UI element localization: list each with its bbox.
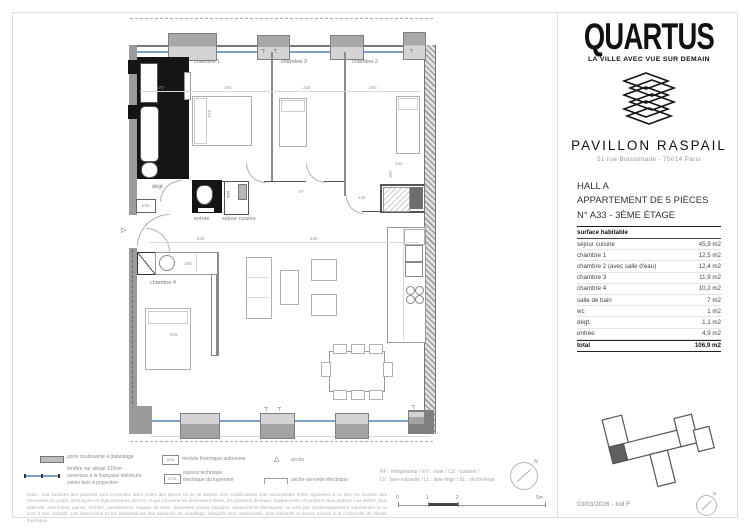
hall-label: HALL A [577, 180, 708, 194]
legend-mta-label: module thermique autonome [182, 456, 246, 462]
chair [383, 362, 393, 377]
scale-label-2: 2 [456, 495, 459, 501]
bathroom-door-slot [184, 72, 191, 100]
row-label: chambre 3 [577, 274, 606, 281]
washbasin [140, 63, 158, 103]
row-label: chambre 2 (avec salle d'eau) [577, 263, 656, 270]
dimension-label: 200 [369, 85, 377, 90]
hall-wall [324, 181, 344, 182]
coffee-table [280, 270, 299, 305]
dimension-label: 225 [170, 332, 178, 337]
legend-porte-label: porte coulissante à galandage [67, 454, 134, 460]
table-row: chambre 112,5 m2 [577, 250, 721, 261]
chair [321, 362, 331, 377]
window-legend-tick [41, 474, 43, 478]
hob-burner [406, 295, 415, 304]
radiator-icon: ⊤ [411, 406, 415, 411]
scale-tick [458, 502, 459, 507]
room-label-chambre4: chambre 4 [150, 280, 176, 286]
appliance-key-l2: LV : lave-vaisselle / LL : lave-linge / … [380, 477, 495, 483]
salle-eau-wall [380, 184, 424, 186]
hob-burner [406, 286, 415, 295]
table-row: dégt.1,1 m2 [577, 317, 721, 328]
table-row: chambre 410,2 m2 [577, 284, 721, 295]
row-label: séjour cuisine [577, 241, 615, 248]
mta-legend-abbr: MTA [167, 458, 174, 462]
scale-tick [545, 502, 546, 507]
wc-door-slot [198, 208, 214, 212]
legend-fenetre-l1: fenêtre sur allège 120cm [67, 466, 122, 472]
etel-legend-abbr: ETEL [168, 477, 176, 481]
row-label: dégt. [577, 319, 591, 326]
chair [333, 344, 347, 354]
shower [383, 187, 410, 212]
wall-left-lower [129, 248, 137, 408]
duct-box [137, 252, 156, 275]
window-box [335, 413, 369, 439]
hall-wall [264, 181, 306, 182]
dimension-chain [140, 91, 420, 92]
chambre2-wall [362, 211, 380, 212]
sink [405, 245, 423, 262]
window-legend-tick [58, 474, 60, 478]
dimension-label: 415 [207, 110, 212, 118]
wall-chambre1-3 [271, 52, 273, 182]
row-label: chambre 4 [577, 285, 606, 292]
surface-table-header: surface habitable [577, 226, 721, 239]
etel-box-label: ETEL [142, 204, 150, 208]
sliding-door-pocket [211, 274, 217, 356]
etel-legend-icon: ETEL [164, 474, 181, 484]
project-address: 51 rue Boissonade - 75014 Paris [560, 156, 738, 163]
sofa-cushion-line [247, 277, 269, 278]
chair [369, 344, 383, 354]
window-box [403, 32, 426, 60]
chair [369, 390, 383, 400]
toilet [141, 162, 158, 178]
dimension-label: 240 [197, 236, 205, 241]
row-label: chambre 1 [577, 252, 606, 259]
room-label-sejour: séjour cuisine [222, 216, 256, 222]
hall-wall [222, 181, 246, 182]
room-label-chambre1: chambre 1 [194, 59, 220, 65]
boundary-line-top [130, 18, 433, 19]
window-box [180, 413, 220, 439]
boundary-line-bottom [130, 441, 433, 442]
date-stamp: 03/03/2026 - Ind F [577, 501, 630, 508]
radiator-icon: ⊤ [261, 50, 265, 55]
wall-chambre3-2 [344, 52, 346, 196]
row-value: 1,1 m2 [702, 319, 721, 326]
toilet [196, 185, 213, 205]
window-box [330, 35, 364, 60]
table-row: salle de bain7 m2 [577, 295, 721, 306]
scale-label-5m: 5m [536, 495, 543, 501]
compass-needle [517, 469, 531, 482]
armchair [311, 259, 337, 281]
window-box [408, 411, 425, 425]
dining-table [329, 351, 385, 392]
radiator-icon: ⊤ [277, 408, 281, 413]
legend-acces-label: accès [291, 457, 304, 463]
row-label: wc [577, 308, 585, 315]
surface-table: surface habitable séjour cuisine45,9 m2 … [577, 226, 721, 352]
brand-logo-text: QUARTUS [584, 18, 714, 55]
north-label: N [534, 459, 538, 465]
isometric-stack-logo-icon [560, 71, 738, 134]
room-label-entree: entrée [194, 216, 210, 222]
row-value: 12,5 m2 [699, 252, 721, 259]
pillow [194, 98, 207, 144]
chair [351, 390, 365, 400]
window-legend-tick [24, 474, 26, 478]
scale-label-0: 0 [396, 495, 399, 501]
access-legend-icon: △ [274, 456, 279, 463]
sink [405, 262, 423, 277]
radiator-icon: ⊤ [409, 50, 413, 55]
mta-duct [238, 184, 247, 200]
room-label-degt: dégt. [152, 184, 164, 190]
armchair [311, 294, 337, 316]
legend-etel-l2: électrique du logement [183, 477, 234, 483]
row-label: entrée [577, 330, 595, 337]
towel-rail-icon [264, 478, 288, 484]
access-triangle-icon: ▷ [121, 227, 126, 234]
row-value: 10,2 m2 [699, 285, 721, 292]
note-text: Nota : Les surfaces des placards sont co… [27, 492, 387, 524]
chair [351, 344, 365, 354]
sofa [246, 257, 272, 319]
brand-block: QUARTUS LA VILLE AVEC VUE SUR DEMAIN PAV… [560, 18, 738, 163]
brand-tagline: LA VILLE AVEC VUE SUR DEMAIN [560, 56, 738, 63]
legend-seche-label: sèche-serviette électrique [291, 477, 348, 483]
dimension-label: 126 [358, 195, 366, 200]
legend-etel-l1: espace technique [183, 470, 222, 476]
north-compass-icon [696, 495, 717, 516]
legend-fenetre-l3: volets bois à projection [67, 480, 118, 486]
row-value: 7 m2 [707, 297, 721, 304]
counter-divider [196, 253, 197, 272]
dimension-label: 160 [388, 170, 393, 178]
wall-left-jamb [128, 60, 137, 74]
scale-tick [398, 502, 399, 507]
key-plan [580, 396, 730, 501]
total-label: total [577, 342, 590, 349]
radiator-icon: ⊤ [273, 50, 277, 55]
project-name: PAVILLON RASPAIL [560, 138, 738, 153]
title-block-divider [557, 12, 558, 518]
washing-machine [159, 255, 175, 271]
row-value: 45,9 m2 [699, 241, 721, 248]
scale-tick [428, 502, 429, 507]
dimension-label: 97 [299, 189, 304, 194]
pillow [398, 98, 418, 110]
appliance-key-l1: RF : réfrigérateur / EV : évier / CU : c… [380, 469, 479, 475]
row-value: 12,4 m2 [699, 263, 721, 270]
plan-sheet: ⊤ ⊤ ⊤ ⊤ ⊤ ⊤ MTA ETEL ▷ [0, 0, 750, 530]
dimension-label: 198 [184, 261, 192, 266]
table-row: wc1 m2 [577, 306, 721, 317]
wall-left-jamb [128, 105, 137, 119]
north-compass-icon [510, 462, 538, 490]
scale-bar-segment [428, 503, 458, 506]
scale-bar [398, 505, 545, 506]
mta-legend-icon: MTA [162, 455, 179, 465]
wall-corner-bl [129, 406, 152, 434]
etel-box: ETEL [136, 199, 156, 213]
chambre4-wall [217, 252, 219, 356]
radiator-icon: ⊤ [264, 408, 268, 413]
dimension-chain [150, 242, 418, 243]
legend-fenetre-l2: ouverture à la française intérieure [67, 473, 142, 479]
window-box [260, 413, 295, 439]
dimension-label: 234 [303, 85, 311, 90]
room-label-chambre2: chambre 2 [352, 59, 378, 65]
row-value: 4,9 m2 [702, 330, 721, 337]
total-value: 106,9 m2 [695, 342, 721, 349]
salle-eau-wall [380, 184, 382, 212]
window-box [257, 35, 290, 60]
table-row: chambre 2 (avec salle d'eau)12,4 m2 [577, 261, 721, 272]
bathtub [140, 106, 159, 162]
table-total-row: total106,9 m2 [577, 340, 721, 352]
mta-unit-label: MTA [226, 185, 230, 203]
compass-needle [701, 501, 711, 510]
salle-eau-fixture [410, 187, 423, 209]
row-value: 11,9 m2 [699, 274, 721, 281]
hob-burner [415, 295, 424, 304]
sliding-door-icon [40, 456, 64, 463]
dimension-label: 144 [395, 161, 403, 166]
pillow [148, 311, 188, 324]
row-value: 1 m2 [707, 308, 721, 315]
room-label-chambre3: chambre 3 [281, 59, 307, 65]
pillow [281, 100, 305, 112]
unit-number: N° A33 - 3ÈME ÉTAGE [577, 209, 708, 223]
unit-type: APPARTEMENT DE 5 PIÈCES [577, 194, 708, 208]
table-row: entrée4,9 m2 [577, 329, 721, 340]
fridge [404, 229, 425, 245]
row-label: salle de bain [577, 297, 612, 304]
table-row: chambre 311,9 m2 [577, 273, 721, 284]
hob-burner [415, 286, 424, 295]
dimension-label: 290 [224, 85, 232, 90]
north-label: N [713, 492, 716, 497]
table-row: séjour cuisine45,9 m2 [577, 239, 721, 250]
dimension-label: 940 [310, 236, 318, 241]
chair [333, 390, 347, 400]
unit-info: HALL A APPARTEMENT DE 5 PIÈCES N° A33 - … [577, 180, 708, 223]
scale-label-1: 1 [426, 495, 429, 501]
sofa-cushion-line [247, 297, 269, 298]
dimension-label: 170 [156, 85, 164, 90]
